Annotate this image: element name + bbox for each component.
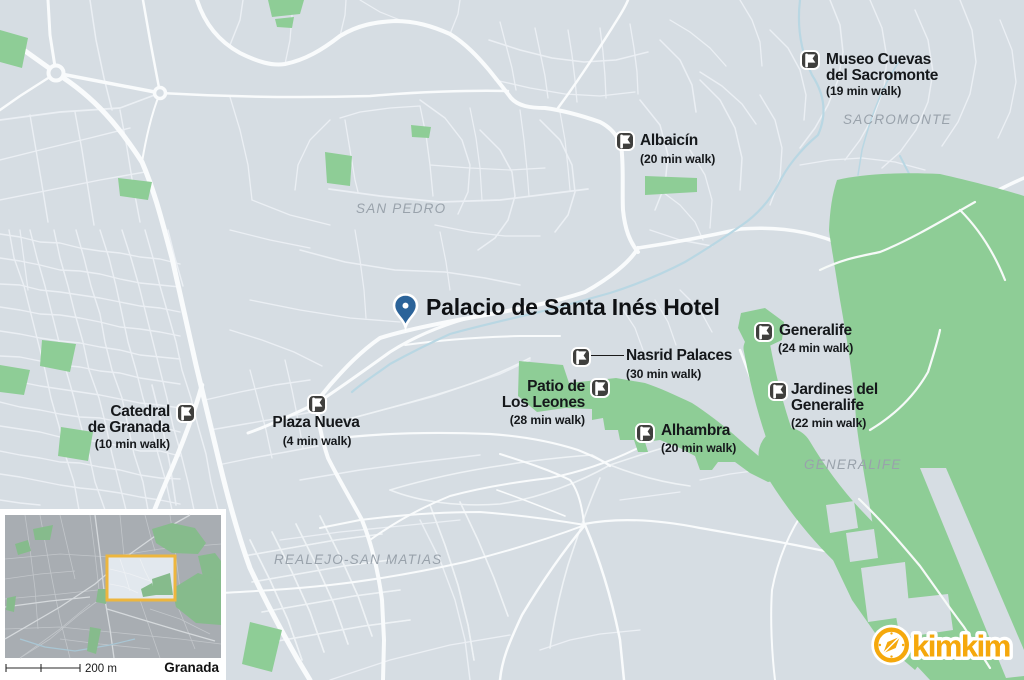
svg-text:Granada: Granada — [164, 660, 219, 675]
svg-text:kimkim: kimkim — [912, 629, 1010, 664]
svg-text:200 m: 200 m — [85, 663, 117, 675]
